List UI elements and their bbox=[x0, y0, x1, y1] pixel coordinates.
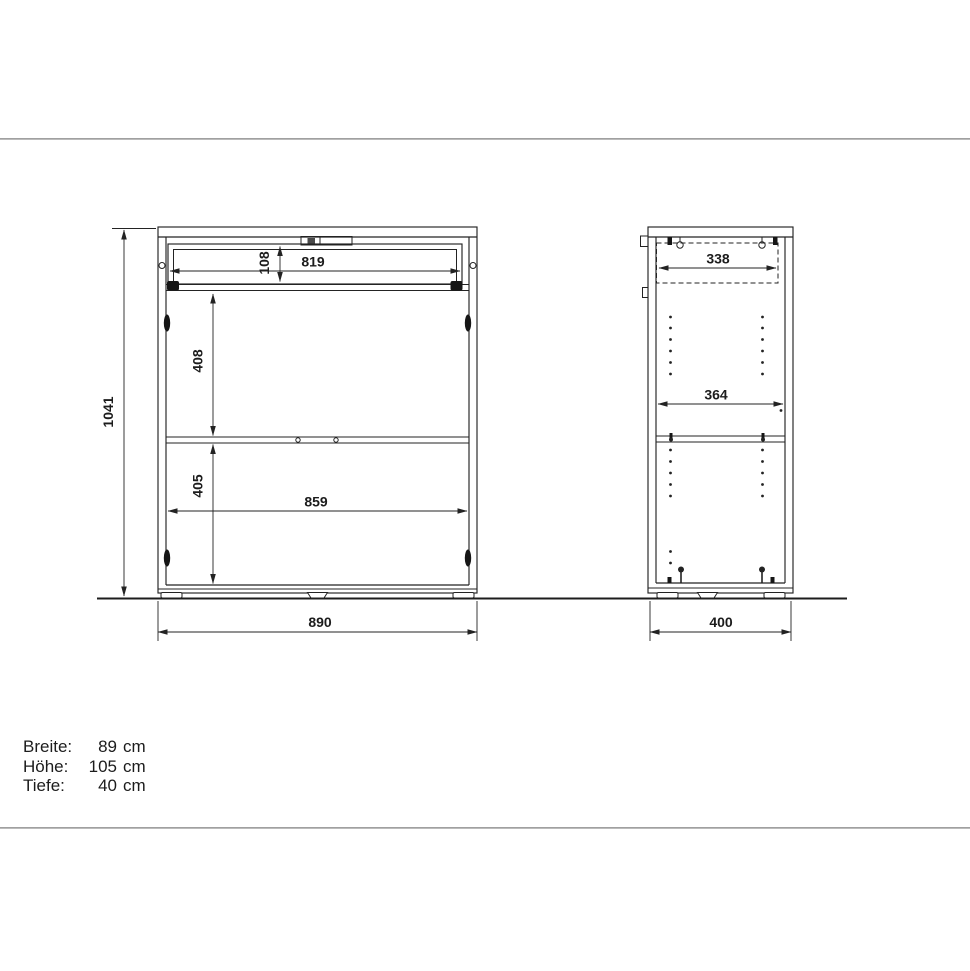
dim-label-819: 819 bbox=[301, 254, 325, 270]
spec-label: Tiefe: bbox=[23, 776, 85, 796]
dimension-summary: Breite: 89 cm Höhe: 105 cm Tiefe: 40 cm bbox=[23, 737, 146, 796]
panel-fittings bbox=[159, 263, 476, 567]
technical-drawing: 1041 108 819 408 405 859 890 bbox=[0, 0, 970, 971]
product-dimension-diagram: { "colors": { "line": "#232323", "separa… bbox=[0, 0, 970, 971]
dimension-upper-section: 408 bbox=[190, 294, 214, 436]
spec-row-tiefe: Tiefe: 40 cm bbox=[23, 776, 146, 796]
dim-label-364: 364 bbox=[704, 387, 728, 403]
dimension-drawer-width: 819 bbox=[170, 254, 460, 272]
spec-value: 40 bbox=[85, 776, 117, 796]
dimension-overall-height: 1041 bbox=[100, 229, 156, 597]
bottom-screws bbox=[668, 567, 775, 584]
dim-label-405: 405 bbox=[190, 474, 206, 498]
middle-shelf bbox=[166, 437, 469, 443]
dimension-overall-depth: 400 bbox=[650, 601, 791, 641]
shelf-pin-holes bbox=[669, 316, 782, 565]
wall-brackets bbox=[641, 236, 649, 298]
dim-label-890: 890 bbox=[308, 614, 332, 630]
spec-row-breite: Breite: 89 cm bbox=[23, 737, 146, 757]
side-view-cabinet bbox=[641, 227, 794, 598]
dimension-lower-section: 405 bbox=[190, 445, 214, 584]
spec-row-hoehe: Höhe: 105 cm bbox=[23, 757, 146, 777]
spec-unit: cm bbox=[123, 757, 146, 777]
spec-label: Breite: bbox=[23, 737, 85, 757]
dimension-drawer-depth: 338 bbox=[659, 251, 776, 269]
spec-label: Höhe: bbox=[23, 757, 85, 777]
dim-label-1041: 1041 bbox=[100, 396, 116, 427]
dimension-drawer-height: 108 bbox=[256, 247, 280, 282]
dim-label-400: 400 bbox=[709, 614, 733, 630]
dim-label-338: 338 bbox=[706, 251, 730, 267]
dimension-overall-width: 890 bbox=[158, 601, 477, 641]
dimension-inner-depth: 364 bbox=[658, 387, 783, 405]
dim-label-859: 859 bbox=[304, 494, 328, 510]
spec-value: 105 bbox=[85, 757, 117, 777]
spec-unit: cm bbox=[123, 776, 146, 796]
spec-value: 89 bbox=[85, 737, 117, 757]
spec-unit: cm bbox=[123, 737, 146, 757]
side-middle-shelf bbox=[656, 433, 785, 442]
dim-label-408: 408 bbox=[190, 349, 206, 373]
front-view-cabinet bbox=[158, 227, 477, 598]
